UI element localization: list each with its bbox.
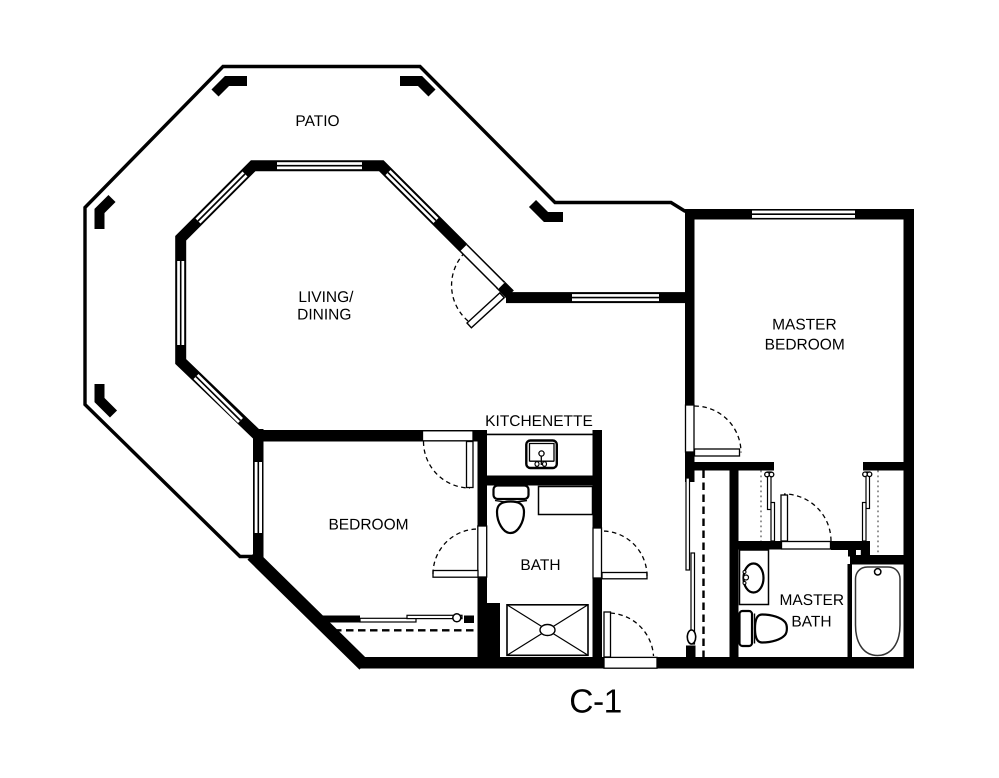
svg-text:LIVING/: LIVING/ (298, 289, 354, 306)
svg-text:C-1: C-1 (569, 684, 621, 721)
svg-text:KITCHENETTE: KITCHENETTE (485, 413, 593, 430)
svg-text:PATIO: PATIO (295, 113, 339, 130)
svg-text:MASTER: MASTER (780, 592, 845, 609)
svg-text:BEDROOM: BEDROOM (765, 336, 845, 353)
svg-text:DINING: DINING (297, 306, 351, 323)
svg-text:BATH: BATH (520, 557, 560, 574)
svg-text:BEDROOM: BEDROOM (328, 516, 408, 533)
svg-text:MASTER: MASTER (772, 317, 837, 334)
svg-text:BATH: BATH (791, 613, 831, 630)
